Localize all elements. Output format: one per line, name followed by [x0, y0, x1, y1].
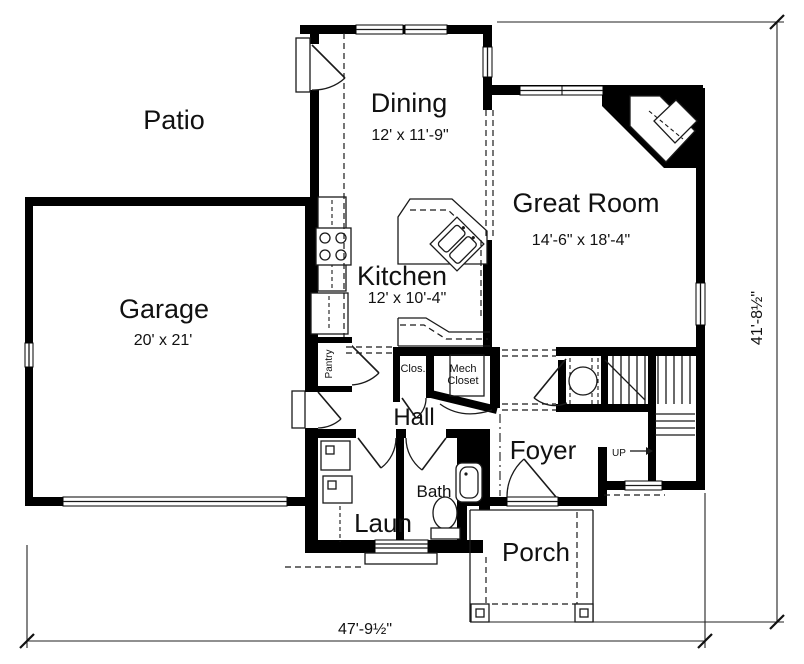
porch-post [575, 604, 593, 622]
window [625, 481, 662, 490]
rear-stoop [365, 553, 437, 564]
pantry-label: Pantry [324, 350, 335, 379]
porch-label: Porch [502, 537, 570, 567]
patio-door [296, 38, 345, 92]
laundry-label: Laun [354, 508, 412, 538]
toilet-icon [431, 497, 460, 539]
patio-label: Patio [143, 105, 205, 135]
understair-closet [569, 358, 598, 404]
floor-plan-drawing: Patio Garage 20' x 21' Dining 12' x 11'-… [0, 0, 804, 664]
great-room-label: Great Room [512, 188, 659, 218]
mech-closet-label-1: Mech [450, 363, 477, 375]
garage-label: Garage [119, 294, 209, 324]
dining-label: Dining [371, 88, 448, 118]
laundry-exterior-door [375, 540, 428, 553]
stove-icon [316, 228, 351, 265]
labels: Patio Garage 20' x 21' Dining 12' x 11'-… [119, 88, 766, 638]
closet-label: Clos. [400, 363, 425, 375]
foyer-label: Foyer [510, 435, 577, 465]
pantry-door [349, 343, 379, 385]
corner-fireplace [602, 85, 703, 168]
up-label: UP [612, 448, 626, 459]
garage-dims: 20' x 21' [134, 332, 193, 349]
window [405, 25, 447, 34]
great-room-dims: 14'-6" x 18'-4" [532, 232, 630, 249]
hall-label: Hall [393, 404, 434, 431]
kitchen-south-counter [398, 318, 490, 346]
kitchen-label: Kitchen [357, 261, 447, 291]
water-heater-icon [569, 367, 597, 395]
window [25, 343, 33, 367]
overall-width-dimension: 47'-9½" [338, 621, 392, 638]
bathtub-icon [456, 463, 482, 502]
dryer-icon [323, 476, 352, 503]
porch-post [471, 604, 489, 622]
window [696, 283, 705, 325]
floor-plan: Patio Garage 20' x 21' Dining 12' x 11'-… [0, 0, 804, 664]
bath-fixtures [431, 463, 482, 539]
stair-break-line [605, 360, 645, 400]
window [562, 86, 603, 95]
bath-label: Bath [417, 482, 452, 501]
window [520, 86, 562, 95]
front-door-threshold [507, 497, 558, 506]
laundry-door [358, 438, 396, 468]
mech-closet-label-2: Closet [447, 375, 478, 387]
garage-overhead-door [63, 497, 287, 506]
kitchen-dims: 12' x 10'-4" [368, 290, 447, 307]
washer-icon [321, 441, 350, 470]
window [483, 47, 492, 77]
overall-height-dimension: 41'-8½" [749, 291, 766, 345]
dining-dims: 12' x 11'-9" [371, 127, 448, 144]
laundry-fixtures [321, 441, 352, 542]
window [356, 25, 403, 34]
bath-door [406, 438, 446, 470]
